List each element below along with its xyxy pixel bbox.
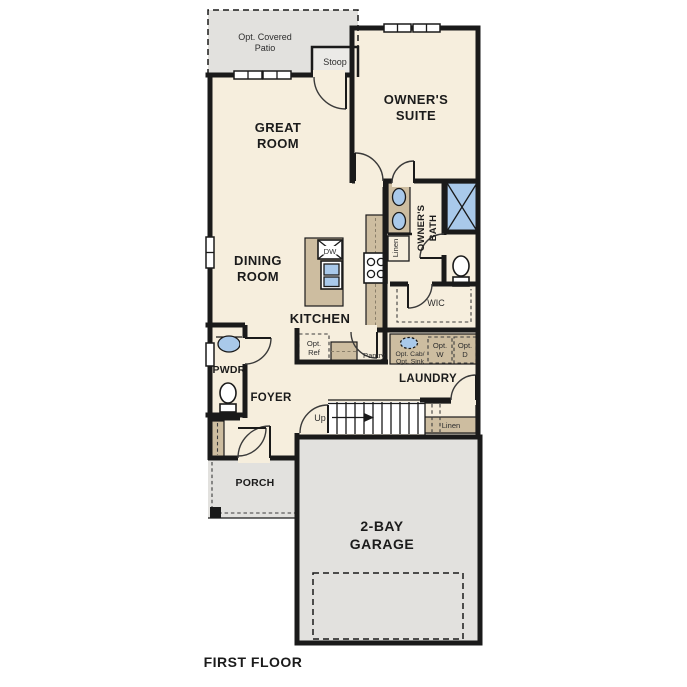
island-sink-basin xyxy=(324,277,339,287)
foyer-label: FOYER xyxy=(250,392,292,404)
opt-dryer-label: D xyxy=(462,350,468,359)
bath-door-opening xyxy=(392,175,414,187)
island-sink-basin xyxy=(324,264,339,275)
vanity-sink xyxy=(393,213,406,230)
opt-dryer-label: Opt. xyxy=(458,341,472,350)
laundry-label: LAUNDRY xyxy=(399,373,457,385)
hall-linen-label: Linen xyxy=(442,421,461,430)
great-room-label: GREAT xyxy=(255,120,302,135)
pantry-door-opening xyxy=(352,325,377,335)
patio-label: Patio xyxy=(255,43,276,53)
vanity-sink xyxy=(393,189,406,206)
garage-label: GARAGE xyxy=(350,536,414,552)
pwdr-sink xyxy=(218,336,240,352)
pwdr-toilet-tank xyxy=(220,404,236,412)
owners-bath-label: BATH xyxy=(428,215,439,241)
patio-label: Opt. Covered xyxy=(238,32,292,42)
pwdr-window xyxy=(206,343,214,366)
porch-label: PORCH xyxy=(236,477,275,489)
laundry-door-opening xyxy=(451,395,476,405)
great-room-label: ROOM xyxy=(257,136,299,151)
dining-room-label: DINING xyxy=(234,253,282,268)
owners-bath-label: OWNER'S xyxy=(416,205,427,251)
owners-suite-label: SUITE xyxy=(396,108,436,123)
opt-ref-label: Ref xyxy=(308,348,321,357)
opt-sink-label: Opt. Sink xyxy=(396,359,425,366)
garage-label: 2-BAY xyxy=(360,518,403,534)
floor-plan: Opt. Covered Patio Stoop GREAT ROOM OWNE… xyxy=(0,0,687,687)
stoop-label: Stoop xyxy=(323,57,347,67)
floor-title: FIRST FLOOR xyxy=(204,654,303,670)
toilet-bowl xyxy=(453,256,469,276)
bath-linen-label: Linen xyxy=(391,239,400,258)
dishwasher-label: DW xyxy=(324,247,337,256)
pwdr-label: PWDR xyxy=(213,364,246,376)
stoop-door-opening xyxy=(313,70,345,81)
pwdr-toilet-bowl xyxy=(220,383,236,403)
porch-post xyxy=(210,507,221,518)
up-label: Up xyxy=(314,413,326,423)
kitchen-label: KITCHEN xyxy=(290,311,351,326)
opt-washer-label: W xyxy=(436,350,444,359)
floor-plan-page: Opt. Covered Patio Stoop GREAT ROOM OWNE… xyxy=(0,0,687,687)
owners-suite-label: OWNER'S xyxy=(384,92,448,107)
toilet-door-opening xyxy=(440,235,449,255)
suite-door-opening xyxy=(355,175,383,187)
pwdr-door-opening xyxy=(240,338,250,364)
dining-room-label: ROOM xyxy=(237,269,279,284)
opt-washer-label: Opt. xyxy=(433,341,447,350)
opt-cab-label: Opt. Cab/ xyxy=(395,351,424,358)
front-door-opening xyxy=(238,453,270,463)
pantry-label: Pantry xyxy=(363,351,385,360)
opt-ref-label: Opt. xyxy=(307,339,321,348)
wic-label: WIC xyxy=(427,298,445,308)
wic-door-opening xyxy=(408,279,432,289)
opt-sink-oval xyxy=(401,338,418,349)
